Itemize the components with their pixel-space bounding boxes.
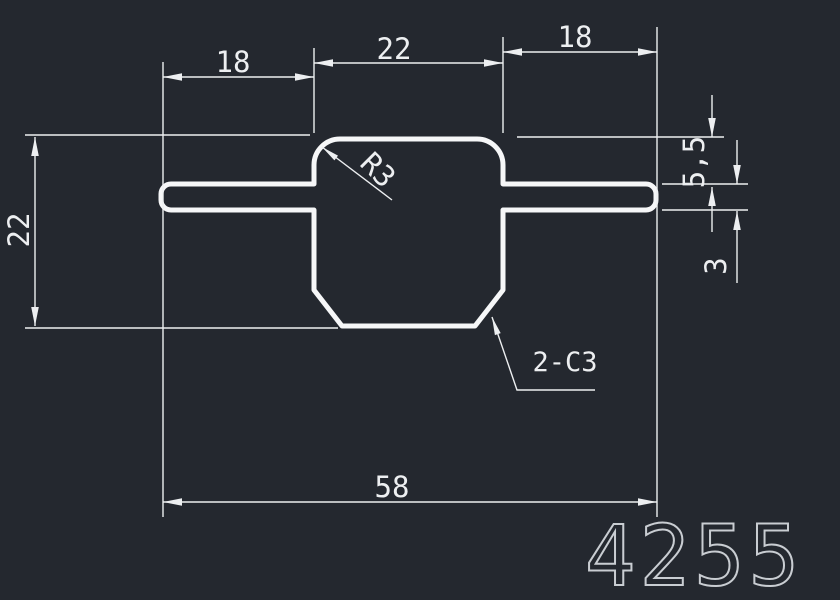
dim-text-top-right-18: 18 xyxy=(558,20,593,54)
dim-text-right-3: 3 xyxy=(699,257,733,274)
drawing-number: 4255 xyxy=(585,507,803,600)
cad-drawing: 18 22 18 22 5,5 3 58 R3 2-C3 4255 xyxy=(0,0,840,600)
dim-text-right-5-5: 5,5 xyxy=(677,136,711,188)
dim-text-bottom-58: 58 xyxy=(375,470,410,504)
chamfer-label: 2-C3 xyxy=(532,347,597,378)
dim-text-top-left-18: 18 xyxy=(216,45,251,79)
dim-text-left-22: 22 xyxy=(2,213,36,248)
dim-text-top-center-22: 22 xyxy=(377,32,412,66)
